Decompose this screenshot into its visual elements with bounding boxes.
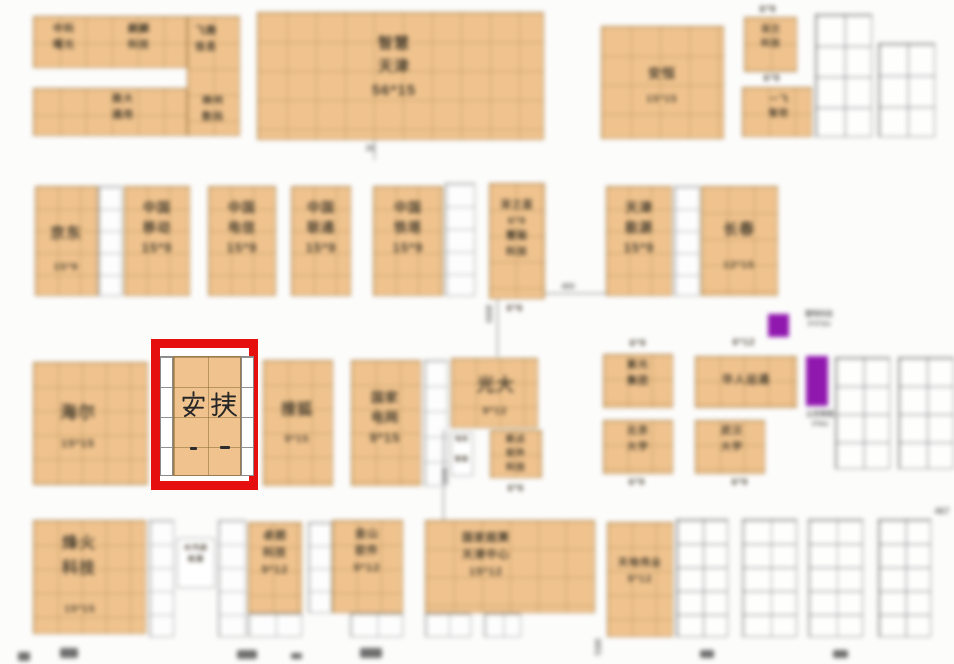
floor-plan-blurred-layer: 中科 曙光麒麟 科技飞腾 信息南大 通用神州 数码智慧 天津 56*15安恒15…	[0, 0, 954, 664]
purple-booth	[768, 314, 789, 337]
booth-label: 慧鸣科技 3*3*3m	[794, 310, 844, 334]
floor-plan-image: 中科 曙光麒麟 科技飞腾 信息南大 通用神州 数码智慧 天津 56*15安恒15…	[0, 0, 954, 664]
booth-label: 中国 铁塔 15*9	[380, 198, 436, 282]
empty-booth-grid	[808, 519, 863, 637]
booth-label: 6*6	[499, 302, 531, 314]
dimension-label: 400	[556, 281, 580, 292]
empty-booth-grid	[676, 519, 728, 637]
empty-booth-grid	[742, 519, 797, 637]
booth-label: 安恒	[634, 64, 690, 88]
booth-label: 6*6	[500, 482, 532, 494]
aisle-cells	[218, 520, 246, 637]
aisle-cells	[484, 613, 521, 637]
edge-mark	[18, 652, 30, 661]
edge-mark	[60, 648, 78, 658]
booth-label: 华人运通	[703, 372, 789, 390]
edge-mark	[833, 650, 848, 658]
booth-label: 中国 电信 15*9	[214, 198, 270, 282]
booth-label: 15*9	[44, 260, 88, 273]
dimension-label: 8000	[479, 305, 493, 347]
booth-label: 9*12	[462, 404, 528, 417]
empty-booth-grid	[878, 43, 935, 137]
booth-label: 新点 软件 科技	[493, 433, 539, 475]
booth-label: 长春	[710, 218, 768, 242]
booth-label: 天地伟业 9*12	[609, 556, 671, 592]
booth-label: 中国 联通 15*9	[293, 198, 349, 282]
aisle-cells	[149, 520, 174, 637]
aisle-cells	[425, 613, 471, 637]
booth-label: 京东	[38, 222, 94, 246]
dimension-line	[545, 293, 607, 294]
booth-label: 北京 大学	[616, 424, 660, 466]
empty-booth-grid	[898, 357, 954, 469]
edge-mark	[291, 653, 302, 659]
dimension-label: 35	[363, 143, 377, 155]
booth-label: 6*9	[621, 476, 653, 488]
booth-label: 9*15	[272, 432, 322, 445]
dimension-label: 6000	[435, 468, 447, 504]
booth-label: 神州 数码	[190, 94, 236, 134]
booth-label: 烽火 科技	[46, 532, 112, 592]
dimension-label: 3651	[588, 638, 602, 664]
aisle-cells	[674, 186, 700, 296]
booth-label: 天津 能源 15*9	[611, 198, 667, 282]
booth-label: 一飞 智控	[760, 93, 798, 131]
booth-label: 6*12	[722, 336, 766, 349]
booth-label: 6*9	[724, 476, 756, 488]
booth-label: 紫光 集团	[616, 358, 660, 400]
dimension-line	[497, 299, 498, 357]
booth-label: 6*9	[748, 3, 788, 15]
booth-label: 中汽研 检测	[179, 544, 213, 566]
booth-label: 6*9	[617, 337, 659, 350]
booth-label: 麒麟 科技	[116, 22, 162, 62]
booth-label: 南大 通用	[100, 92, 146, 132]
booth-label: 15*15	[56, 602, 104, 616]
aisle-cells	[308, 522, 332, 613]
aisle-cells	[445, 183, 475, 296]
booth-label: 智慧 天津 56*15	[352, 32, 436, 126]
edge-mark	[237, 650, 257, 659]
booth-label: 深之蓝 6*9 慧聪 科技	[492, 198, 542, 290]
booth-label: 中国 移动 15*9	[129, 198, 185, 282]
booth-label: 智能	[452, 456, 472, 466]
edge-mark	[700, 650, 714, 658]
booth-label: 电科	[452, 436, 472, 446]
dimension-label: 467	[930, 505, 954, 517]
booth-label: 6*9	[754, 72, 790, 85]
empty-booth-grid	[878, 519, 931, 637]
booth-label: 金山 软件 9*12	[340, 526, 394, 592]
aisle-cells	[98, 186, 122, 296]
empty-booth-grid	[835, 357, 890, 469]
booth-label: 搜狐	[266, 398, 328, 424]
empty-booth-grid	[815, 14, 872, 137]
purple-booth	[806, 356, 828, 406]
booth-label: 12*15	[712, 258, 766, 271]
booth-label: 国家超算 天津中心 15*12	[444, 530, 528, 600]
booth-label: 深兰 科技	[752, 23, 790, 61]
booth-label: 武汉 大学	[710, 424, 754, 466]
booth-label: 卓朗 科技 9*12	[251, 528, 299, 594]
booth-label: 15*15	[50, 436, 106, 450]
booth-label: 光大	[458, 372, 534, 400]
aisle-cells	[350, 613, 403, 637]
aisle-cells	[248, 613, 302, 637]
edge-mark	[360, 648, 382, 658]
booth-label: 国家 电网 9*15	[356, 388, 414, 468]
booth-label: 15*15	[636, 92, 688, 106]
booth-label: 飞腾 信息	[184, 24, 228, 64]
booth-label: 中科 曙光	[40, 22, 88, 62]
booth-label: 海尔	[46, 400, 110, 428]
